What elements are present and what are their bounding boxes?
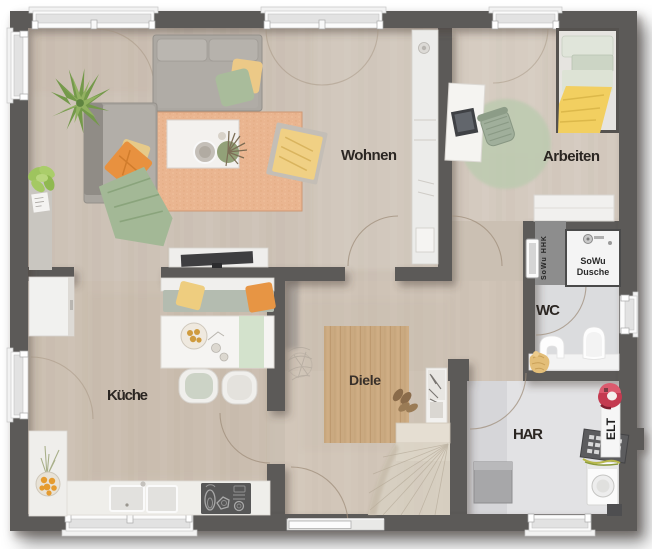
svg-text:Wohnen: Wohnen [341,147,397,164]
svg-text:WC: WC [536,302,560,319]
svg-text:HAR: HAR [513,426,543,443]
svg-text:Arbeiten: Arbeiten [543,148,600,165]
svg-text:Diele: Diele [349,372,381,388]
svg-text:SoWu HHK: SoWu HHK [541,236,548,280]
svg-text:Dusche: Dusche [577,267,610,277]
svg-text:SoWu: SoWu [580,256,605,266]
svg-text:Küche: Küche [107,387,148,404]
svg-text:ELT: ELT [604,417,618,440]
